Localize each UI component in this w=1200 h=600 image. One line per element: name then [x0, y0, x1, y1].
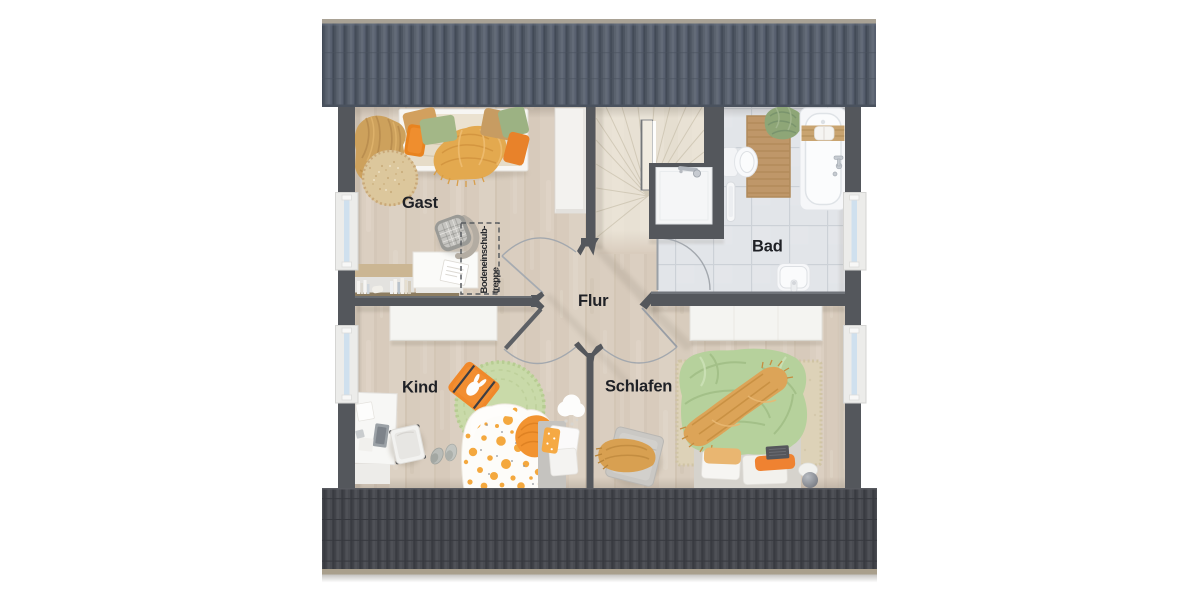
svg-text:Kind: Kind	[402, 379, 438, 397]
svg-text:Bad: Bad	[752, 238, 783, 256]
svg-text:treppe: treppe	[491, 267, 502, 293]
svg-text:Bodeneinschub-: Bodeneinschub-	[479, 226, 490, 294]
svg-text:Schlafen: Schlafen	[605, 378, 672, 396]
svg-text:Flur: Flur	[578, 292, 609, 310]
svg-text:Gast: Gast	[402, 194, 439, 212]
